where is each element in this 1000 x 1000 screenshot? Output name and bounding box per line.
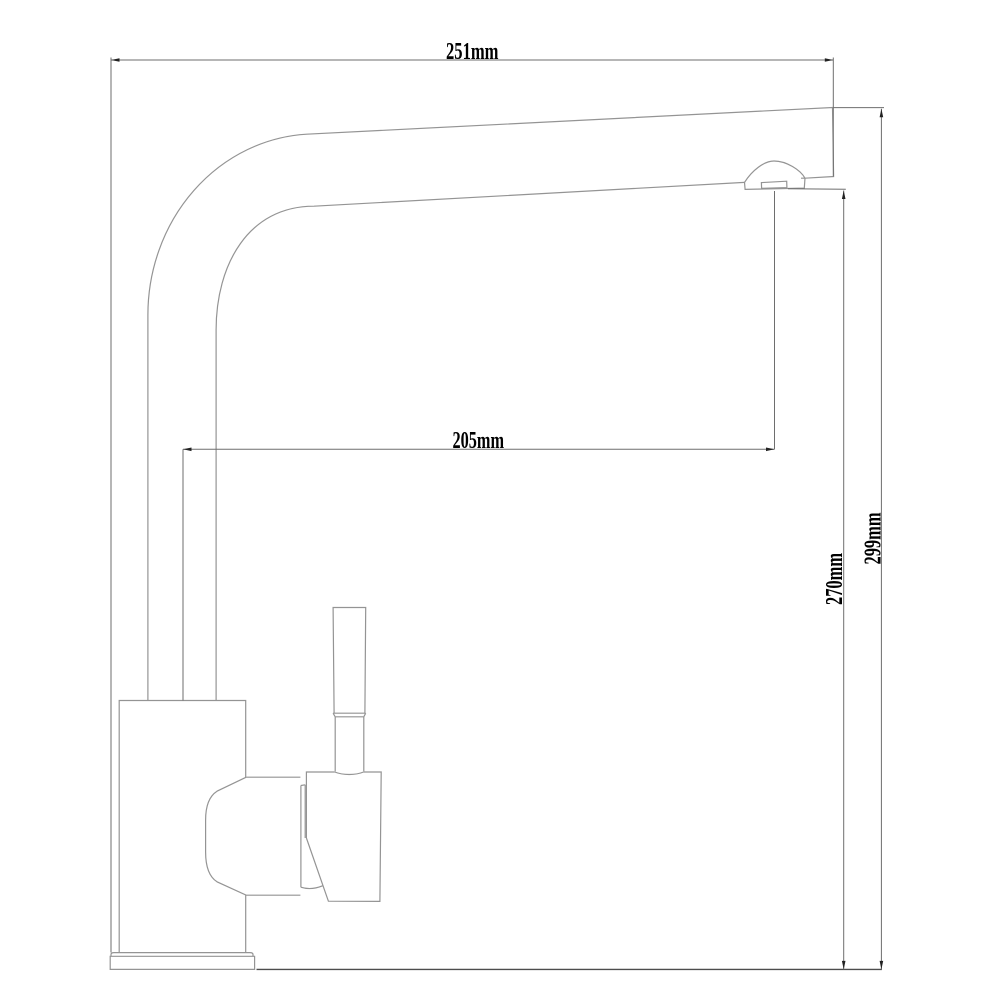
svg-text:299mm: 299mm <box>860 512 886 564</box>
svg-text:270mm: 270mm <box>822 553 848 605</box>
svg-text:251mm: 251mm <box>446 39 499 65</box>
svg-text:205mm: 205mm <box>453 428 505 454</box>
